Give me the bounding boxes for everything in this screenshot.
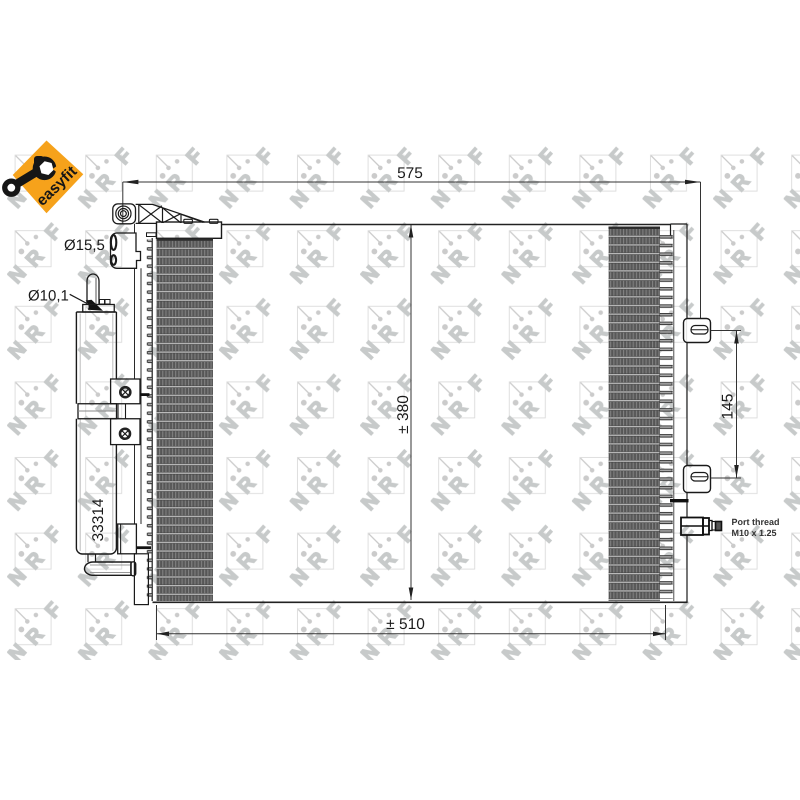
svg-text:575: 575 — [397, 165, 423, 182]
svg-text:145: 145 — [720, 394, 737, 420]
svg-text:Port thread: Port thread — [732, 517, 780, 527]
svg-text:± 380: ± 380 — [395, 395, 412, 434]
svg-text:± 510: ± 510 — [386, 616, 425, 633]
svg-text:Ø10,1: Ø10,1 — [28, 288, 69, 305]
svg-text:M10 x 1.25: M10 x 1.25 — [732, 528, 777, 538]
svg-text:33314: 33314 — [90, 498, 107, 541]
svg-text:Ø15,5: Ø15,5 — [64, 237, 105, 254]
